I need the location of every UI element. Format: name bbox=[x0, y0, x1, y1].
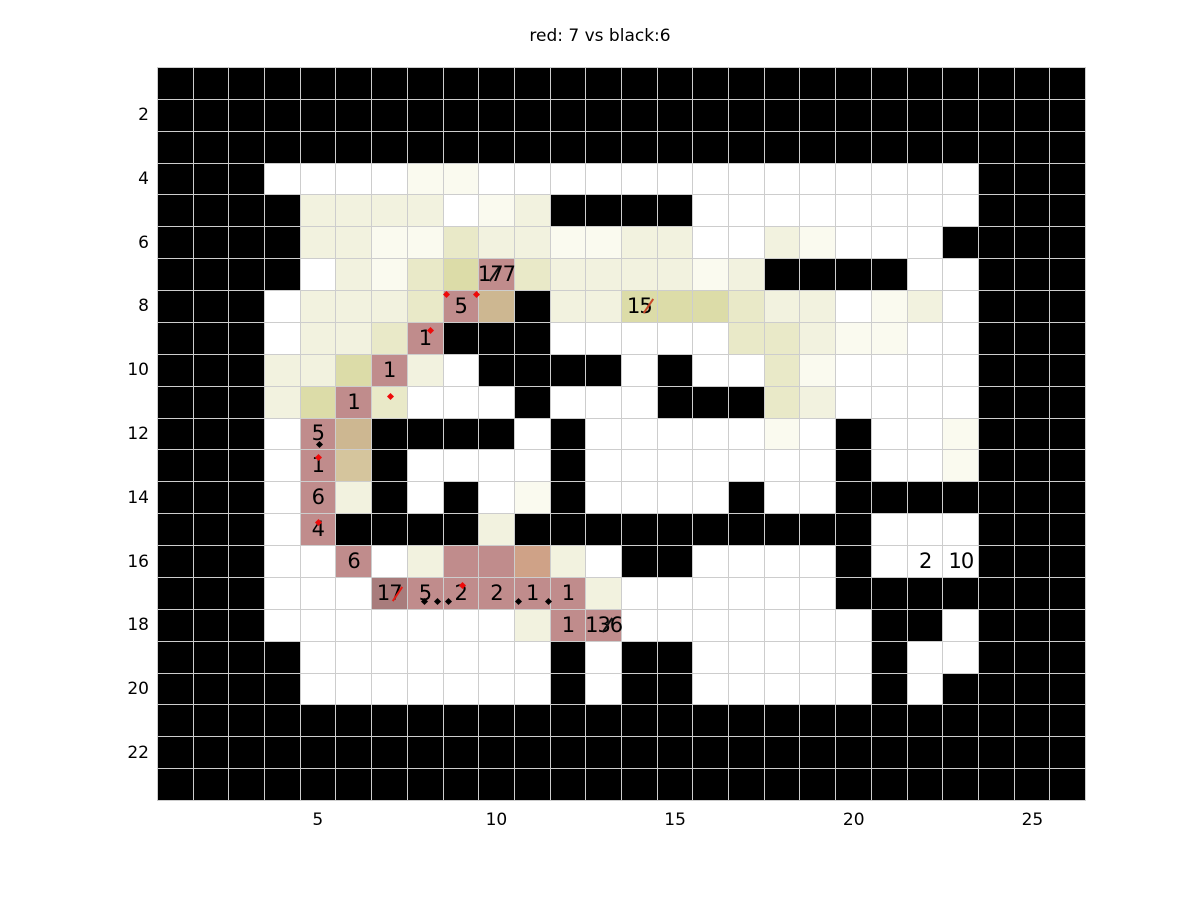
grid-cell bbox=[158, 419, 193, 450]
grid-cell bbox=[765, 195, 800, 226]
grid-cell bbox=[515, 642, 550, 673]
grid-cell bbox=[800, 291, 835, 322]
grid-cell bbox=[943, 737, 978, 768]
grid-cell bbox=[444, 291, 479, 322]
grid-cell bbox=[729, 642, 764, 673]
grid-cell bbox=[729, 419, 764, 450]
grid-cell bbox=[622, 705, 657, 736]
grid-cell bbox=[586, 450, 621, 481]
grid-cell bbox=[372, 769, 407, 800]
grid-cell bbox=[729, 291, 764, 322]
grid-cell bbox=[765, 514, 800, 545]
grid-cell bbox=[194, 737, 229, 768]
grid-cell bbox=[194, 610, 229, 641]
grid-cell bbox=[979, 769, 1014, 800]
grid-cell bbox=[836, 546, 871, 577]
grid-cell bbox=[836, 132, 871, 163]
grid-cell bbox=[301, 546, 336, 577]
grid-cell bbox=[979, 737, 1014, 768]
grid-cell bbox=[479, 514, 514, 545]
grid-cell bbox=[765, 132, 800, 163]
grid-cell bbox=[586, 514, 621, 545]
grid-cell bbox=[265, 259, 300, 290]
grid-cell bbox=[479, 642, 514, 673]
grid-cell bbox=[800, 68, 835, 99]
grid-cell bbox=[979, 450, 1014, 481]
grid-cell bbox=[372, 68, 407, 99]
grid-cell bbox=[194, 387, 229, 418]
grid-cell bbox=[1050, 450, 1085, 481]
grid-cell bbox=[943, 68, 978, 99]
grid-cell bbox=[194, 546, 229, 577]
grid-cell bbox=[836, 642, 871, 673]
grid-cell bbox=[336, 610, 371, 641]
grid-cell bbox=[515, 387, 550, 418]
grid-cell bbox=[479, 387, 514, 418]
grid-cell bbox=[693, 164, 728, 195]
grid-cell bbox=[372, 164, 407, 195]
grid-cell bbox=[444, 514, 479, 545]
grid-cell bbox=[1015, 642, 1050, 673]
grid-cell bbox=[479, 227, 514, 258]
grid-cell bbox=[194, 419, 229, 450]
grid-cell bbox=[301, 514, 336, 545]
grid-cell bbox=[551, 514, 586, 545]
grid-cell bbox=[408, 259, 443, 290]
grid-cell bbox=[765, 355, 800, 386]
grid-cell bbox=[1015, 514, 1050, 545]
grid-cell bbox=[1015, 578, 1050, 609]
y-tick-label: 16 bbox=[105, 552, 149, 572]
grid-cell bbox=[765, 769, 800, 800]
grid-cell bbox=[622, 100, 657, 131]
grid-cell bbox=[836, 769, 871, 800]
grid-cell bbox=[372, 387, 407, 418]
grid-cell bbox=[729, 100, 764, 131]
grid-cell bbox=[765, 291, 800, 322]
grid-cell bbox=[336, 227, 371, 258]
grid-cell bbox=[1015, 68, 1050, 99]
grid-cell bbox=[908, 642, 943, 673]
grid-cell bbox=[515, 674, 550, 705]
grid-cell bbox=[765, 674, 800, 705]
grid-cell bbox=[979, 68, 1014, 99]
grid-cell bbox=[979, 100, 1014, 131]
grid-cell bbox=[444, 68, 479, 99]
x-tick-label: 20 bbox=[843, 810, 865, 830]
grid-cell bbox=[586, 227, 621, 258]
grid-cell bbox=[444, 355, 479, 386]
grid-cell bbox=[444, 769, 479, 800]
grid-cell bbox=[479, 705, 514, 736]
grid-cell bbox=[908, 355, 943, 386]
grid-cell bbox=[943, 674, 978, 705]
grid-cell bbox=[551, 132, 586, 163]
grid-cell bbox=[444, 705, 479, 736]
grid-cell bbox=[229, 68, 264, 99]
grid-cell bbox=[158, 642, 193, 673]
grid-cell bbox=[551, 769, 586, 800]
grid-cell bbox=[194, 514, 229, 545]
grid-cell bbox=[336, 482, 371, 513]
grid-cell bbox=[372, 259, 407, 290]
grid-cell bbox=[693, 68, 728, 99]
grid-cell bbox=[1050, 132, 1085, 163]
grid-cell bbox=[979, 546, 1014, 577]
grid-cell bbox=[444, 227, 479, 258]
grid-cell bbox=[908, 769, 943, 800]
grid-cell bbox=[586, 195, 621, 226]
grid-cell bbox=[943, 610, 978, 641]
grid-cell bbox=[979, 259, 1014, 290]
grid-cell bbox=[693, 737, 728, 768]
grid-cell bbox=[336, 132, 371, 163]
grid-cell bbox=[622, 387, 657, 418]
grid-cell bbox=[908, 291, 943, 322]
grid-cell bbox=[194, 578, 229, 609]
grid-cell bbox=[551, 291, 586, 322]
grid-cell bbox=[872, 100, 907, 131]
grid-cell bbox=[872, 355, 907, 386]
grid-cell bbox=[515, 482, 550, 513]
grid-cell bbox=[729, 578, 764, 609]
grid-cell bbox=[1050, 227, 1085, 258]
grid-cell bbox=[979, 419, 1014, 450]
grid-cell bbox=[479, 546, 514, 577]
grid-cell bbox=[301, 291, 336, 322]
grid-cell bbox=[693, 259, 728, 290]
grid-cell bbox=[1050, 419, 1085, 450]
grid-cell bbox=[444, 546, 479, 577]
y-tick-label: 12 bbox=[105, 424, 149, 444]
grid-cell bbox=[265, 514, 300, 545]
grid-cell bbox=[408, 642, 443, 673]
grid-cell bbox=[194, 355, 229, 386]
grid-cell bbox=[586, 769, 621, 800]
grid-cell bbox=[765, 546, 800, 577]
grid-cell bbox=[622, 674, 657, 705]
grid-cell bbox=[943, 387, 978, 418]
grid-cell bbox=[729, 546, 764, 577]
grid-cell bbox=[158, 323, 193, 354]
grid-cell bbox=[1015, 610, 1050, 641]
grid-cell bbox=[408, 450, 443, 481]
grid-cell bbox=[943, 100, 978, 131]
grid-cell bbox=[1050, 164, 1085, 195]
grid-cell bbox=[444, 195, 479, 226]
grid-cell bbox=[979, 482, 1014, 513]
grid-cell bbox=[551, 674, 586, 705]
grid-cell bbox=[444, 642, 479, 673]
grid-cell bbox=[800, 610, 835, 641]
grid-cell bbox=[872, 450, 907, 481]
grid-cell bbox=[301, 132, 336, 163]
grid-cell bbox=[194, 705, 229, 736]
grid-cell bbox=[372, 642, 407, 673]
y-tick-label: 10 bbox=[105, 360, 149, 380]
grid-cell bbox=[1015, 227, 1050, 258]
grid-cell bbox=[158, 482, 193, 513]
grid-cell bbox=[872, 578, 907, 609]
grid-cell bbox=[408, 291, 443, 322]
grid-cell bbox=[408, 769, 443, 800]
grid-cell bbox=[1050, 546, 1085, 577]
grid-cell bbox=[693, 514, 728, 545]
grid-cell bbox=[765, 705, 800, 736]
grid-cell bbox=[444, 674, 479, 705]
grid-cell bbox=[979, 227, 1014, 258]
grid-cell bbox=[658, 387, 693, 418]
grid-cell bbox=[693, 450, 728, 481]
grid-cell bbox=[408, 737, 443, 768]
grid-cell bbox=[908, 100, 943, 131]
grid-cell bbox=[658, 164, 693, 195]
grid-cell bbox=[515, 578, 550, 609]
grid-cell bbox=[836, 705, 871, 736]
grid-cell bbox=[1015, 323, 1050, 354]
grid-cell bbox=[551, 419, 586, 450]
grid-cell bbox=[765, 450, 800, 481]
grid-cell bbox=[872, 769, 907, 800]
grid-cell bbox=[908, 132, 943, 163]
grid-cell bbox=[479, 195, 514, 226]
grid-cell bbox=[800, 482, 835, 513]
grid-cell bbox=[908, 419, 943, 450]
grid-cell bbox=[836, 68, 871, 99]
x-tick-label: 10 bbox=[486, 810, 508, 830]
grid-cell bbox=[943, 259, 978, 290]
grid-cell bbox=[979, 195, 1014, 226]
grid-cell bbox=[622, 642, 657, 673]
grid-cell bbox=[408, 674, 443, 705]
grid-cell bbox=[265, 674, 300, 705]
grid-cell bbox=[729, 259, 764, 290]
grid-cell bbox=[800, 195, 835, 226]
grid-cell bbox=[979, 610, 1014, 641]
grid-cell bbox=[194, 227, 229, 258]
grid-cell bbox=[336, 419, 371, 450]
grid-cell bbox=[408, 355, 443, 386]
grid-cell bbox=[229, 737, 264, 768]
grid-cell bbox=[372, 227, 407, 258]
grid-cell bbox=[158, 610, 193, 641]
grid-cell bbox=[194, 132, 229, 163]
grid-cell bbox=[1015, 164, 1050, 195]
grid-cell bbox=[194, 769, 229, 800]
grid-cell bbox=[1015, 100, 1050, 131]
grid-cell bbox=[229, 769, 264, 800]
grid-cell bbox=[658, 227, 693, 258]
grid-cell bbox=[336, 674, 371, 705]
grid-cell bbox=[943, 355, 978, 386]
grid-cell bbox=[765, 100, 800, 131]
grid-cell bbox=[943, 419, 978, 450]
grid-cell bbox=[765, 737, 800, 768]
grid-cell bbox=[658, 68, 693, 99]
grid-cell bbox=[836, 227, 871, 258]
grid-cell bbox=[943, 132, 978, 163]
grid-cell bbox=[336, 195, 371, 226]
grid-cell bbox=[515, 705, 550, 736]
grid-cell bbox=[908, 610, 943, 641]
grid-cell bbox=[265, 227, 300, 258]
grid-cell bbox=[658, 132, 693, 163]
grid-cell bbox=[658, 195, 693, 226]
grid-cell bbox=[479, 578, 514, 609]
grid-cell bbox=[800, 674, 835, 705]
grid-cell bbox=[836, 737, 871, 768]
grid-cell bbox=[586, 546, 621, 577]
grid-cell bbox=[943, 642, 978, 673]
grid-cell bbox=[1015, 737, 1050, 768]
y-tick-label: 22 bbox=[105, 743, 149, 763]
grid-cell bbox=[194, 323, 229, 354]
grid-cell bbox=[301, 642, 336, 673]
grid-cell bbox=[693, 642, 728, 673]
grid-cell bbox=[1015, 259, 1050, 290]
grid-cell bbox=[586, 642, 621, 673]
grid-cell bbox=[622, 482, 657, 513]
grid-cell bbox=[336, 514, 371, 545]
grid-cell bbox=[586, 737, 621, 768]
grid-cell bbox=[479, 259, 514, 290]
grid-cell bbox=[622, 323, 657, 354]
grid-cell bbox=[301, 769, 336, 800]
grid-cell bbox=[194, 259, 229, 290]
grid-cell bbox=[336, 387, 371, 418]
grid-cell bbox=[943, 769, 978, 800]
grid-cell bbox=[836, 419, 871, 450]
grid-cell bbox=[229, 674, 264, 705]
grid-cell bbox=[336, 769, 371, 800]
grid-cell bbox=[765, 323, 800, 354]
grid-cell bbox=[301, 610, 336, 641]
grid-cell bbox=[658, 419, 693, 450]
grid-cell bbox=[158, 450, 193, 481]
grid-cell bbox=[586, 355, 621, 386]
grid-cell bbox=[194, 164, 229, 195]
grid-cell bbox=[194, 642, 229, 673]
grid-cell bbox=[729, 227, 764, 258]
grid-cell bbox=[1050, 705, 1085, 736]
grid-cell bbox=[943, 705, 978, 736]
grid-cell bbox=[301, 164, 336, 195]
grid-cell bbox=[872, 323, 907, 354]
grid-cell bbox=[658, 642, 693, 673]
grid-cell bbox=[229, 259, 264, 290]
grid-cell bbox=[586, 68, 621, 99]
grid-cell bbox=[444, 737, 479, 768]
grid-cell bbox=[800, 100, 835, 131]
grid-cell bbox=[1015, 387, 1050, 418]
grid-cell bbox=[551, 737, 586, 768]
grid-cell bbox=[301, 355, 336, 386]
heatmap-grid bbox=[157, 67, 1086, 801]
grid-cell bbox=[479, 737, 514, 768]
grid-cell bbox=[622, 610, 657, 641]
grid-cell bbox=[872, 482, 907, 513]
grid-cell bbox=[979, 514, 1014, 545]
grid-cell bbox=[551, 387, 586, 418]
grid-cell bbox=[693, 578, 728, 609]
grid-cell bbox=[229, 387, 264, 418]
grid-cell bbox=[872, 546, 907, 577]
grid-cell bbox=[586, 705, 621, 736]
grid-cell bbox=[1015, 769, 1050, 800]
grid-cell bbox=[586, 291, 621, 322]
grid-cell bbox=[372, 705, 407, 736]
grid-cell bbox=[301, 100, 336, 131]
grid-cell bbox=[836, 355, 871, 386]
grid-cell bbox=[229, 164, 264, 195]
grid-cell bbox=[872, 387, 907, 418]
grid-cell bbox=[693, 132, 728, 163]
grid-cell bbox=[444, 164, 479, 195]
grid-cell bbox=[1050, 610, 1085, 641]
grid-cell bbox=[515, 164, 550, 195]
grid-cell bbox=[408, 323, 443, 354]
grid-cell bbox=[586, 578, 621, 609]
grid-cell bbox=[658, 514, 693, 545]
grid-cell bbox=[622, 355, 657, 386]
grid-cell bbox=[658, 546, 693, 577]
grid-cell bbox=[515, 546, 550, 577]
grid-cell bbox=[836, 164, 871, 195]
grid-cell bbox=[908, 323, 943, 354]
grid-cell bbox=[729, 514, 764, 545]
grid-cell bbox=[693, 705, 728, 736]
grid-cell bbox=[658, 769, 693, 800]
grid-cell bbox=[158, 195, 193, 226]
grid-cell bbox=[301, 259, 336, 290]
grid-cell bbox=[444, 323, 479, 354]
grid-cell bbox=[908, 546, 943, 577]
y-tick-label: 18 bbox=[105, 615, 149, 635]
grid-cell bbox=[979, 164, 1014, 195]
grid-cell bbox=[301, 195, 336, 226]
grid-cell bbox=[479, 291, 514, 322]
grid-cell bbox=[693, 546, 728, 577]
grid-cell bbox=[265, 610, 300, 641]
grid-cell bbox=[372, 450, 407, 481]
grid-cell bbox=[729, 68, 764, 99]
grid-cell bbox=[265, 642, 300, 673]
grid-cell bbox=[265, 705, 300, 736]
grid-cell bbox=[408, 419, 443, 450]
grid-cell bbox=[479, 355, 514, 386]
grid-cell bbox=[229, 514, 264, 545]
grid-cell bbox=[158, 68, 193, 99]
grid-cell bbox=[336, 642, 371, 673]
grid-cell bbox=[586, 259, 621, 290]
grid-cell bbox=[515, 291, 550, 322]
grid-cell bbox=[408, 610, 443, 641]
grid-cell bbox=[943, 227, 978, 258]
grid-cell bbox=[479, 323, 514, 354]
grid-cell bbox=[729, 195, 764, 226]
grid-cell bbox=[444, 450, 479, 481]
grid-cell bbox=[265, 737, 300, 768]
grid-cell bbox=[479, 100, 514, 131]
grid-cell bbox=[408, 514, 443, 545]
grid-cell bbox=[800, 323, 835, 354]
grid-cell bbox=[765, 642, 800, 673]
grid-cell bbox=[229, 195, 264, 226]
grid-cell bbox=[872, 259, 907, 290]
grid-cell bbox=[658, 482, 693, 513]
grid-cell bbox=[658, 323, 693, 354]
grid-cell bbox=[515, 769, 550, 800]
